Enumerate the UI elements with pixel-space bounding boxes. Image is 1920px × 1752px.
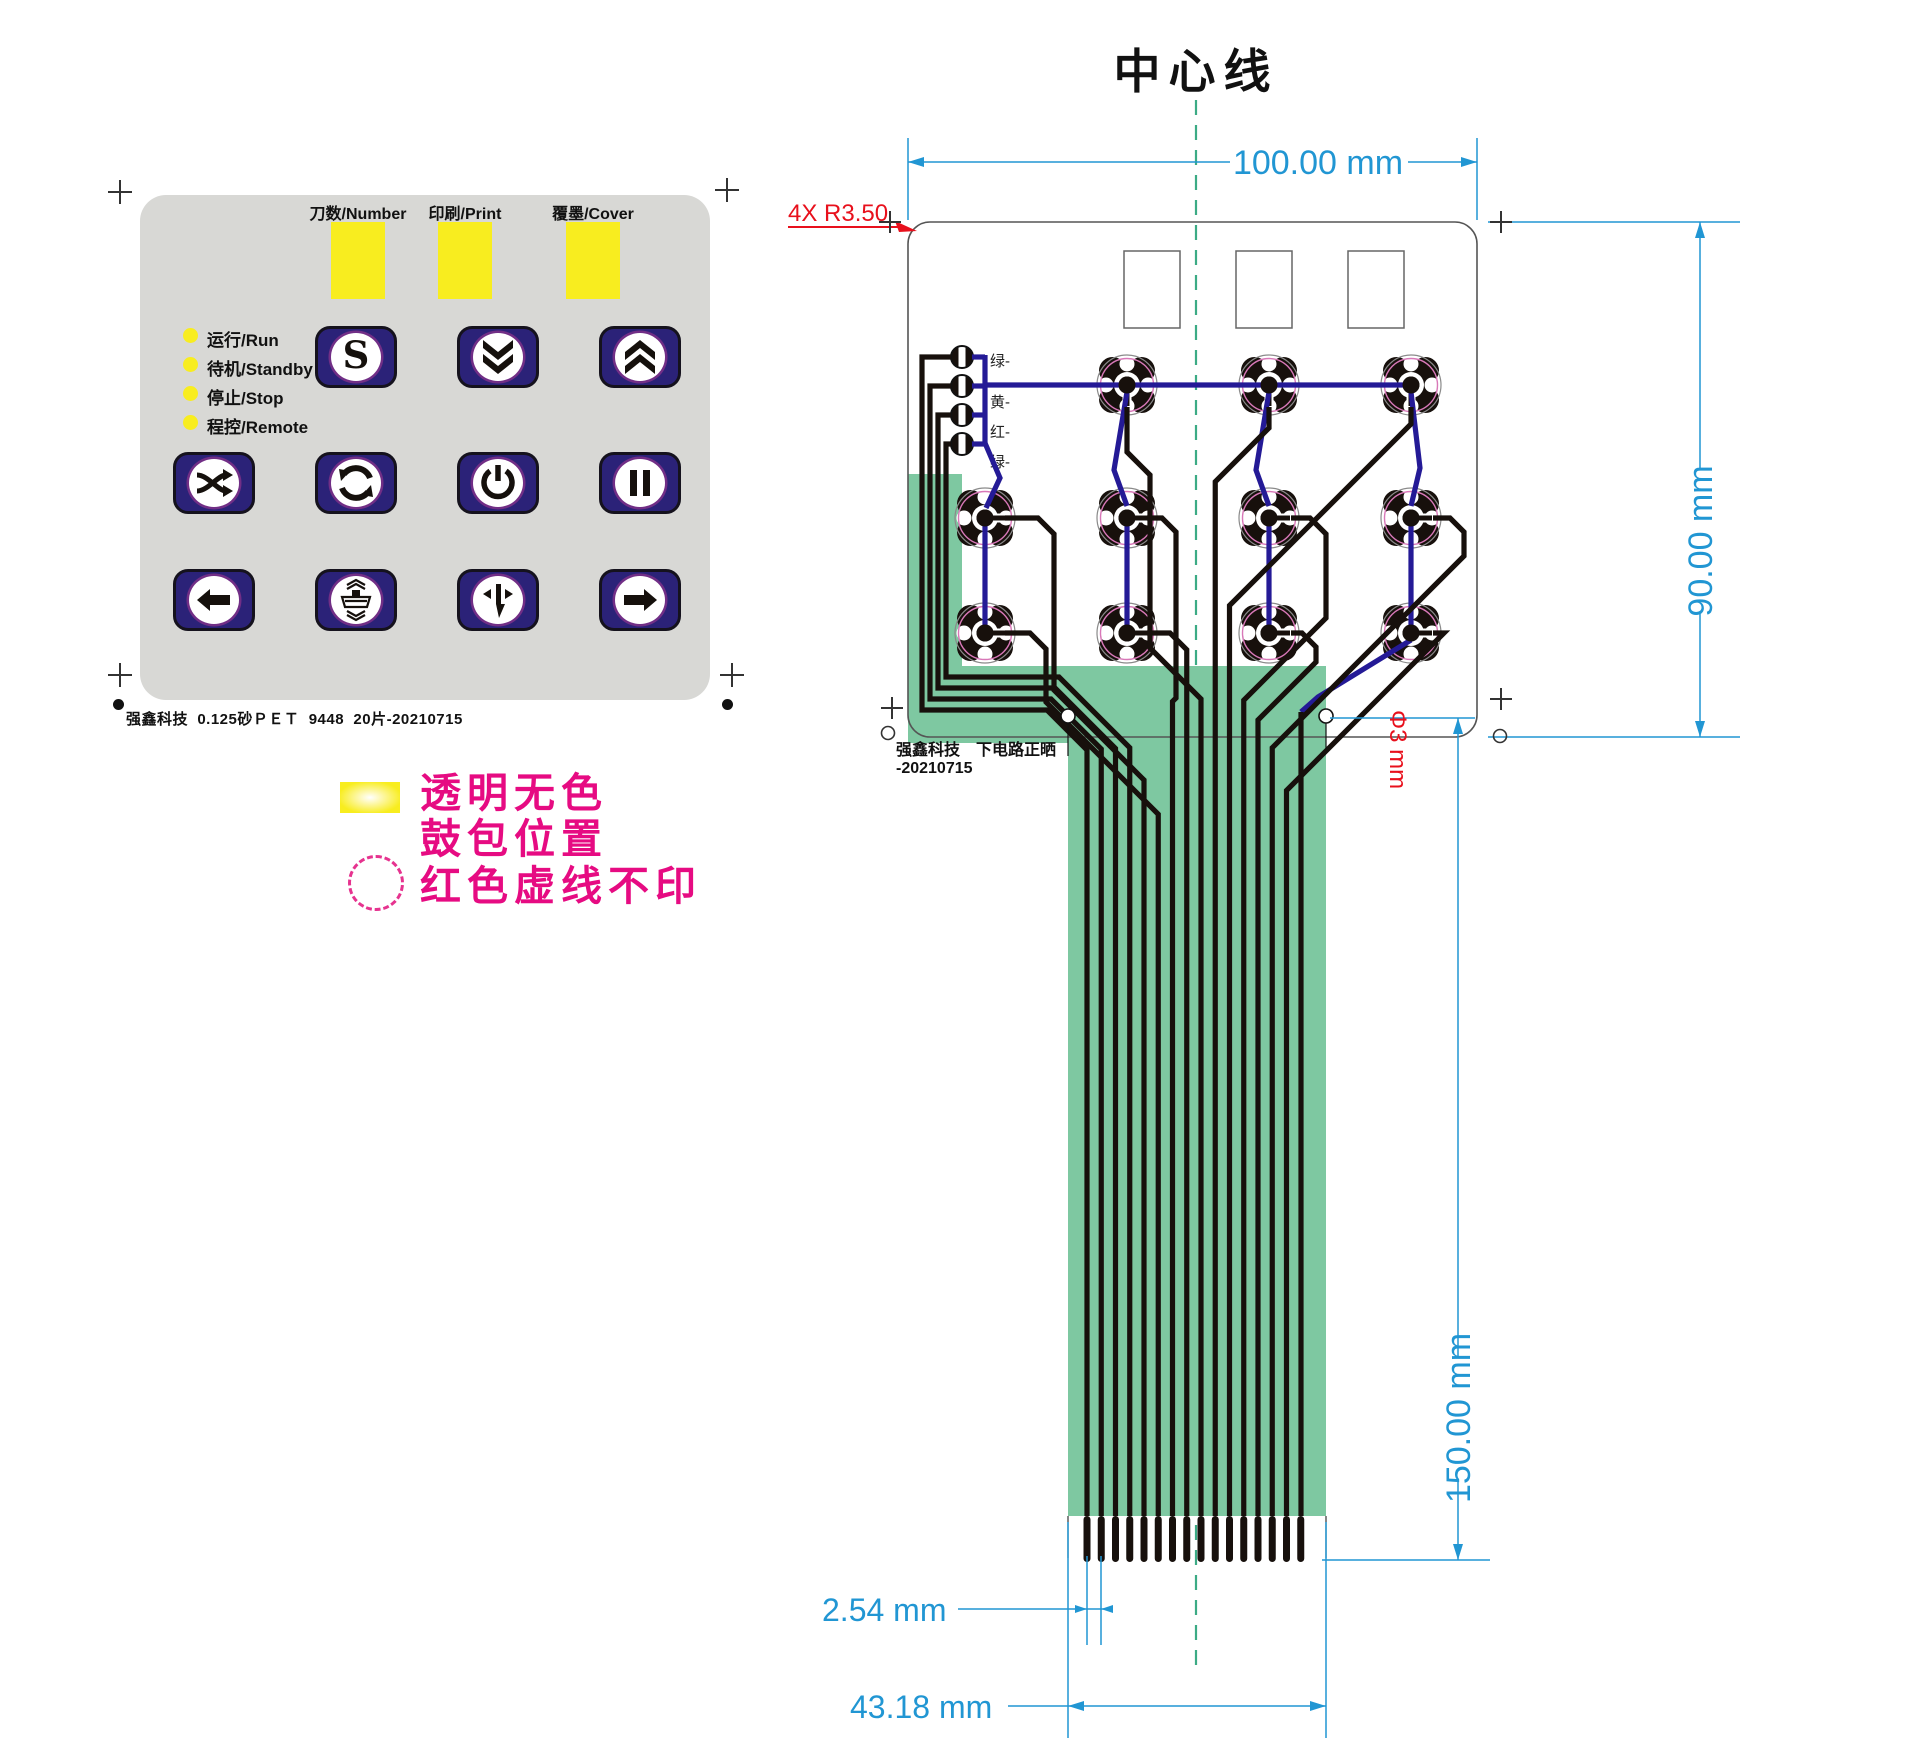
led-dot bbox=[183, 357, 198, 372]
led-contact bbox=[951, 344, 973, 370]
arrow-left-icon bbox=[192, 578, 236, 622]
dim-width: 100.00 mm bbox=[1233, 144, 1403, 182]
drawing-title: 中心线 bbox=[1114, 45, 1279, 98]
status-led-stop: 停止/Stop bbox=[183, 384, 443, 402]
led-contact bbox=[951, 431, 973, 457]
press-icon bbox=[334, 578, 378, 622]
dim-pitch: 2.54 mm bbox=[822, 1592, 946, 1628]
keypad-button-cycle[interactable] bbox=[315, 452, 397, 514]
display-window-number bbox=[331, 222, 385, 299]
keypad-button-right[interactable] bbox=[599, 569, 681, 631]
legend-line-3: 红色虚线不印 bbox=[420, 866, 702, 907]
circuit-window-3 bbox=[1348, 251, 1404, 328]
button-face bbox=[473, 459, 523, 507]
s-icon: S bbox=[343, 337, 370, 374]
circuit-footer-line2: -20210715 bbox=[896, 760, 973, 777]
chevron-double-up-icon bbox=[618, 335, 662, 379]
registration-cross bbox=[720, 663, 744, 687]
keypad-button-left[interactable] bbox=[173, 569, 255, 631]
keypad-button-feed[interactable] bbox=[457, 569, 539, 631]
arrow-right-icon bbox=[618, 578, 662, 622]
pad-centers bbox=[977, 377, 1420, 642]
led-dot bbox=[183, 386, 198, 401]
led-dot bbox=[183, 328, 198, 343]
corner-radius-note: 4X R3.50 bbox=[788, 200, 888, 227]
membrane-switch-drawing: 绿- 黄- 红- 绿- bbox=[0, 0, 1920, 1752]
legend-line-2: 鼓包位置 bbox=[420, 819, 608, 860]
keypad-button-shuffle[interactable] bbox=[173, 452, 255, 514]
keypad-button-pause[interactable] bbox=[599, 452, 681, 514]
registration-dot bbox=[113, 699, 124, 710]
button-face: S bbox=[331, 333, 381, 381]
button-face bbox=[615, 459, 665, 507]
wire-label-red: 红- bbox=[990, 424, 1010, 441]
wire-label-yellow: 黄- bbox=[990, 394, 1010, 411]
legend-line-1: 透明无色 bbox=[420, 773, 608, 814]
keypad-button-power[interactable] bbox=[457, 452, 539, 514]
button-face bbox=[189, 576, 239, 624]
status-led-standby: 待机/Standby bbox=[183, 355, 443, 373]
registration-cross bbox=[715, 178, 739, 202]
chevron-double-down-icon bbox=[476, 335, 520, 379]
button-face bbox=[473, 333, 523, 381]
keypad-button-press[interactable] bbox=[315, 569, 397, 631]
button-face bbox=[615, 576, 665, 624]
window-label-print: 印刷/Print bbox=[395, 200, 535, 224]
keypad-button-step-down[interactable] bbox=[457, 326, 539, 388]
registration-circle bbox=[882, 727, 895, 740]
display-window-cover bbox=[566, 222, 620, 299]
button-face bbox=[331, 576, 381, 624]
pause-icon bbox=[618, 461, 662, 505]
status-led-remote: 程控/Remote bbox=[183, 413, 443, 431]
circuit-window-1 bbox=[1124, 251, 1180, 328]
led-dot bbox=[183, 415, 198, 430]
keypad-button-step-up[interactable] bbox=[599, 326, 681, 388]
led-contact bbox=[951, 373, 973, 399]
registration-cross bbox=[108, 180, 132, 204]
dim-tail-length: 150.00 mm bbox=[1440, 1333, 1478, 1503]
keypad-footer-note: 强鑫科技 0.125砂ＰＥＴ 9448 20片-20210715 bbox=[126, 708, 463, 729]
hole-dia-note: Φ3 mm bbox=[1384, 710, 1411, 789]
button-face bbox=[331, 459, 381, 507]
dim-tail-width: 43.18 mm bbox=[850, 1689, 992, 1725]
circuit-footer-line1: 强鑫科技 下电路正晒 bbox=[896, 740, 1056, 759]
circuit-window-2 bbox=[1236, 251, 1292, 328]
button-face bbox=[473, 576, 523, 624]
registration-circle bbox=[1494, 730, 1507, 743]
led-contact bbox=[951, 402, 973, 428]
legend-swatch-transparent-bump bbox=[340, 782, 400, 813]
window-label-cover: 覆墨/Cover bbox=[523, 200, 663, 224]
keypad-button-s[interactable]: S bbox=[315, 326, 397, 388]
shuffle-icon bbox=[192, 461, 236, 505]
button-face bbox=[189, 459, 239, 507]
status-led-run: 运行/Run bbox=[183, 326, 443, 344]
cycle-icon bbox=[334, 461, 378, 505]
dim-height: 90.00 mm bbox=[1682, 465, 1720, 616]
display-window-print bbox=[438, 222, 492, 299]
registration-dot bbox=[722, 699, 733, 710]
connector-fingers bbox=[1084, 1516, 1305, 1562]
registration-cross bbox=[108, 663, 132, 687]
legend-dashed-circle bbox=[348, 855, 404, 911]
arrow-down-split-icon bbox=[476, 578, 520, 622]
power-icon bbox=[476, 461, 520, 505]
wire-label-green1: 绿- bbox=[990, 353, 1010, 370]
button-face bbox=[615, 333, 665, 381]
